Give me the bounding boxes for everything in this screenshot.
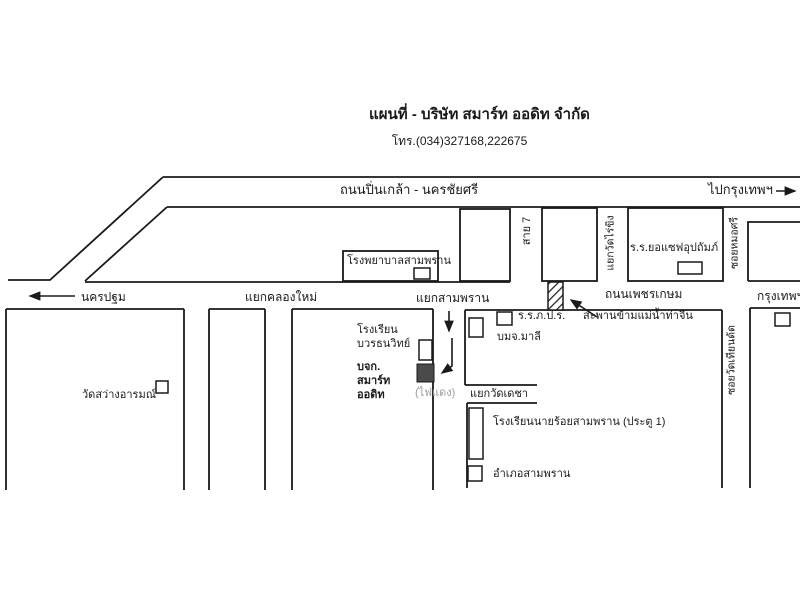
wat-sawang-marker: [156, 381, 168, 393]
cadet-school-marker: [469, 408, 483, 459]
diagonal-road-upper-edge: [8, 177, 163, 280]
intersection-sam-phran: แยกสามพราน: [416, 291, 489, 306]
top-right-block-outline: [748, 222, 800, 281]
road-label-phetkasem: ถนนเพชรเกษม: [605, 287, 682, 302]
bridge-hatch: [548, 282, 563, 310]
place-label-company: บจก. สมาร์ท ออดิท: [357, 361, 390, 402]
road-label-nakhon-pathom: นครปฐม: [81, 290, 126, 305]
map-phone: โทร.(034)327168,222675: [352, 134, 567, 149]
intersection-klong-mai: แยกคลองใหม่: [245, 290, 317, 305]
road-label-to-bangkok: ไปกรุงเทพฯ: [708, 182, 773, 198]
place-label-malee: บมจ.มาลี: [497, 331, 541, 345]
road-label-pinklao: ถนนปิ่นเกล้า - นครชัยศรี: [340, 182, 478, 198]
phor-por-ror-marker: [497, 312, 512, 325]
yoseph-school-marker: [678, 262, 702, 274]
bovorn-school-marker: [419, 340, 432, 360]
malee-marker: [469, 318, 483, 337]
bottom-right-marker: [775, 313, 790, 326]
place-label-cadet-school: โรงเรียนนายร้อยสามพราน (ประตู 1): [493, 416, 665, 430]
block-sai7-raikhing: [542, 208, 597, 281]
hospital-marker: [414, 268, 430, 279]
place-label-phor-por-ror: ร.ร.ภ.ป.ร.: [518, 310, 565, 324]
road-label-bangkok: กรุงเทพฯ: [757, 289, 800, 304]
place-label-bridge: สะพานข้ามแม่น้ำท่าจีน: [583, 310, 693, 324]
traffic-light-label: (ไฟแดง): [415, 387, 455, 401]
road-label-sai7: สาย 7: [517, 217, 535, 246]
road-label-soi-mo-si: ซอยหมอศรี: [726, 217, 743, 269]
place-label-hospital: โรงพยาบาลสามพราน: [347, 255, 451, 269]
diagonal-road-lower-edge: [85, 207, 167, 281]
place-label-yoseph-school: ร.ร.ยอแซฟอุปถัมภ์: [630, 242, 718, 256]
route-arrow-to-company: [442, 338, 452, 373]
place-label-wat-sawang: วัดสว่างอารมณ์: [82, 389, 156, 403]
company-location-marker: [417, 364, 434, 382]
place-label-bovorn-school: โรงเรียน บวรธนวิทย์: [357, 324, 410, 352]
block-between-sampran-and-sai7: [460, 209, 510, 281]
road-label-soi-wat-thian-dat: ซอยวัดเทียนดัด: [723, 325, 740, 395]
intersection-wat-rai-khing: แยกวัดไร่ขิง: [602, 215, 619, 270]
map-title: แผนที่ - บริษัท สมาร์ท ออดิท จำกัด: [352, 106, 607, 125]
intersection-wat-decha: แยกวัดเดชา: [470, 388, 528, 402]
place-label-district-office: อำเภอสามพราน: [493, 468, 570, 482]
district-office-marker: [468, 466, 482, 481]
